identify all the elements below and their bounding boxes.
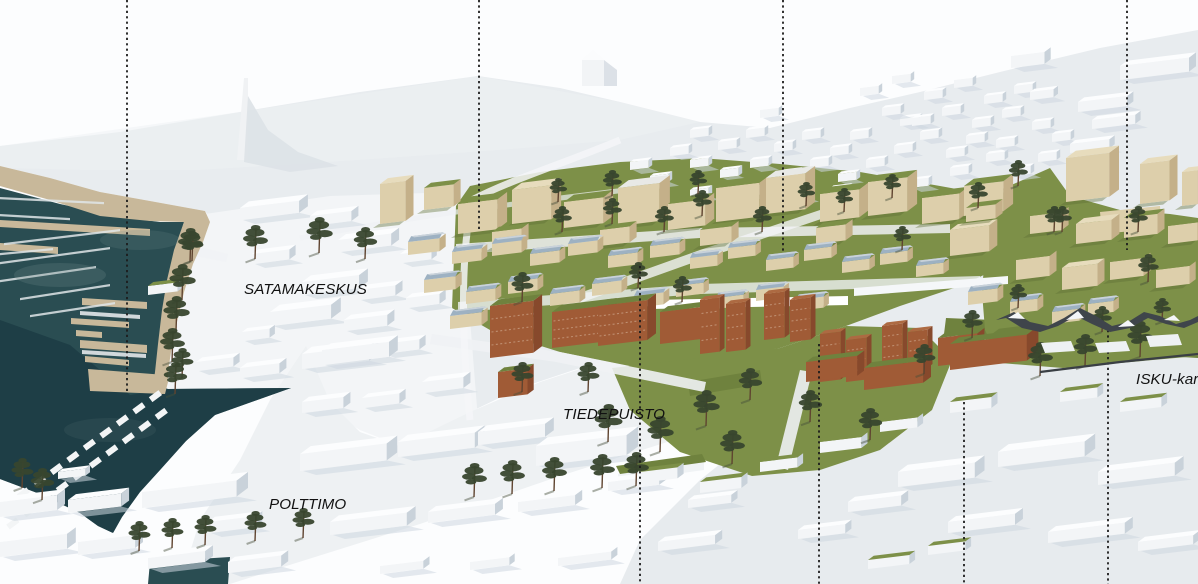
svg-text:POLTTIMO: POLTTIMO bbox=[269, 496, 346, 513]
svg-text:ISKU-kart: ISKU-kart bbox=[1136, 371, 1198, 388]
svg-text:SATAMAKESKUS: SATAMAKESKUS bbox=[244, 281, 367, 298]
svg-text:TIEDEPUISTO: TIEDEPUISTO bbox=[563, 406, 665, 423]
